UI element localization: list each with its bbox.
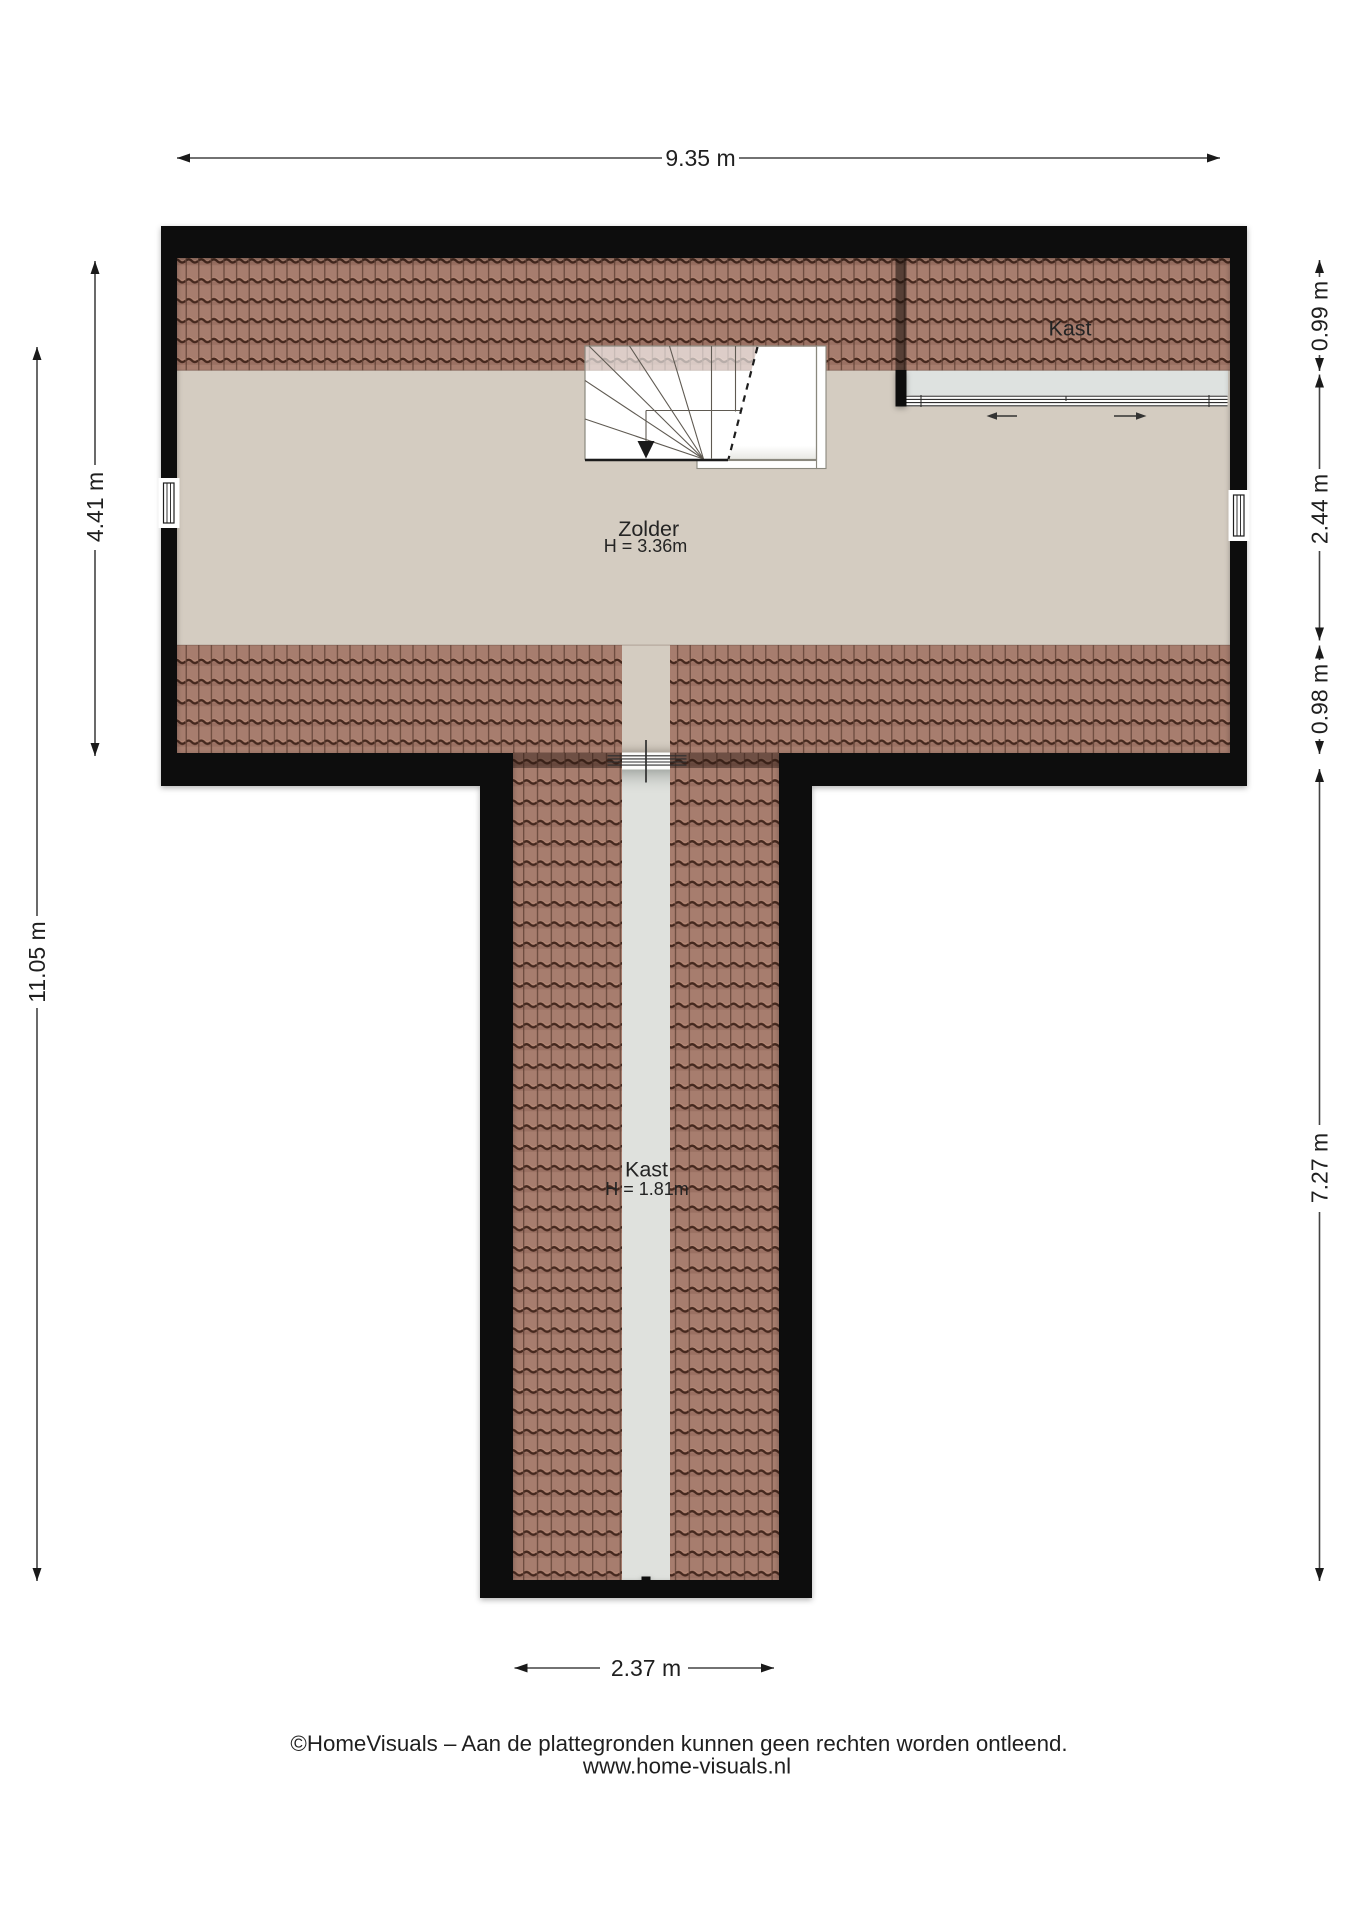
svg-text:2.37 m: 2.37 m bbox=[611, 1655, 681, 1681]
svg-text:0.98 m: 0.98 m bbox=[1307, 664, 1333, 734]
svg-text:7.27 m: 7.27 m bbox=[1307, 1133, 1333, 1203]
svg-text:H = 1.81m: H = 1.81m bbox=[605, 1179, 689, 1199]
svg-text:0.99 m: 0.99 m bbox=[1307, 281, 1333, 351]
svg-text:9.35 m: 9.35 m bbox=[665, 145, 735, 171]
svg-text:Kast: Kast bbox=[1048, 317, 1091, 341]
svg-text:©HomeVisuals – Aan de plattegr: ©HomeVisuals – Aan de plattegronden kunn… bbox=[290, 1731, 1067, 1756]
svg-text:H = 3.36m: H = 3.36m bbox=[604, 536, 688, 556]
svg-text:2.44 m: 2.44 m bbox=[1307, 474, 1333, 544]
svg-text:www.home-visuals.nl: www.home-visuals.nl bbox=[582, 1754, 791, 1779]
svg-text:4.41 m: 4.41 m bbox=[82, 472, 108, 542]
svg-text:11.05 m: 11.05 m bbox=[24, 921, 50, 1002]
